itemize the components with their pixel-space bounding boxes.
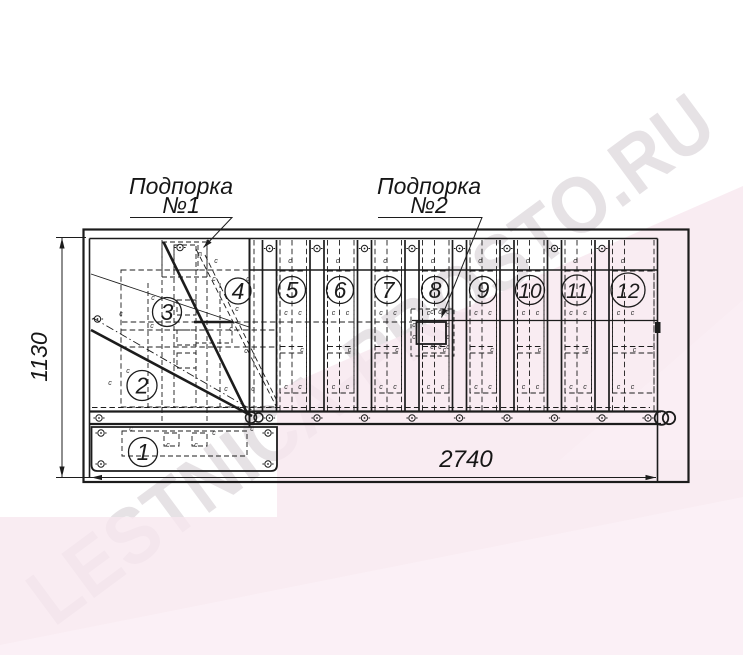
tick-mark: c: [536, 310, 540, 317]
tick-mark: c: [474, 310, 478, 317]
tick-mark: c: [617, 310, 621, 317]
step-number: 7: [382, 277, 396, 303]
tick-mark: c: [536, 384, 540, 391]
tick-mark: c: [474, 384, 478, 391]
tick-mark: c: [478, 258, 482, 265]
tick-mark: c: [214, 258, 218, 265]
tick-mark: c: [108, 380, 112, 387]
tick-mark: c: [244, 348, 248, 355]
tick-mark: c: [573, 258, 577, 265]
tick-mark: c: [490, 347, 494, 354]
step-number: 8: [429, 277, 442, 303]
tick-mark: c: [348, 347, 352, 354]
step-number: 5: [286, 277, 299, 303]
tick-mark: c: [212, 276, 216, 283]
support2-number: №2: [410, 192, 448, 218]
tick-mark: c: [332, 384, 336, 391]
dim-length-value: 2740: [438, 446, 493, 473]
tick-mark: c: [150, 323, 154, 330]
wall-connector-tick: [655, 322, 661, 333]
tick-mark: c: [446, 344, 450, 351]
tick-mark: c: [300, 347, 304, 354]
technical-drawing-canvas: LESTNICA-PROSTO.RU: [0, 0, 743, 655]
staircase-plan-svg: LESTNICA-PROSTO.RU: [0, 0, 743, 655]
step-number: 1: [137, 439, 150, 465]
tick-mark: c: [522, 310, 526, 317]
tick-mark: c: [538, 347, 542, 354]
tick-mark: c: [526, 258, 530, 265]
tick-mark: c: [229, 326, 233, 333]
tick-mark: c: [235, 306, 239, 313]
tick-mark: c: [430, 309, 434, 316]
step-number: 3: [161, 299, 174, 325]
tick-mark: c: [298, 384, 302, 391]
tick-mark: c: [631, 310, 635, 317]
tick-mark: c: [427, 384, 431, 391]
tick-mark: c: [446, 322, 450, 329]
tick-mark: c: [412, 334, 416, 341]
step-number: 9: [477, 277, 490, 303]
step-number: 11: [566, 280, 588, 303]
tick-mark: c: [166, 442, 170, 449]
support1-number: №1: [162, 192, 200, 218]
tick-mark: c: [583, 384, 587, 391]
dim-depth-value: 1130: [26, 332, 52, 382]
tick-mark: c: [346, 384, 350, 391]
tick-mark: c: [129, 426, 133, 433]
step-number: 12: [616, 280, 640, 303]
tick-mark: c: [583, 310, 587, 317]
tick-mark: c: [379, 310, 383, 317]
tick-mark: c: [212, 430, 216, 437]
tick-mark: c: [522, 384, 526, 391]
tick-mark: c: [446, 334, 450, 341]
tick-mark: c: [346, 310, 350, 317]
tick-mark: c: [336, 258, 340, 265]
tick-mark: c: [621, 258, 625, 265]
tick-mark: c: [284, 384, 288, 391]
tick-mark: c: [488, 310, 492, 317]
tick-mark: c: [119, 311, 123, 318]
step-number: 10: [518, 280, 542, 303]
tick-mark: c: [446, 309, 450, 316]
tick-mark: c: [441, 384, 445, 391]
tick-mark: c: [151, 295, 155, 302]
tick-mark: c: [431, 258, 435, 265]
step-number: 6: [334, 277, 347, 303]
tick-mark: c: [569, 384, 573, 391]
tick-mark: c: [438, 344, 442, 351]
tick-mark-alt: п: [198, 251, 202, 258]
tick-mark: c: [194, 442, 198, 449]
tick-mark: c: [383, 258, 387, 265]
tick-mark: c: [284, 310, 288, 317]
tick-mark: c: [412, 322, 416, 329]
tick-mark: c: [443, 347, 447, 354]
tick-mark: c: [393, 384, 397, 391]
tick-mark: c: [393, 310, 397, 317]
tick-mark: c: [288, 258, 292, 265]
tick-mark: c: [379, 384, 383, 391]
tick-mark: c: [298, 310, 302, 317]
tick-mark: c: [631, 384, 635, 391]
tick-mark: c: [633, 347, 637, 354]
tick-mark: c: [585, 347, 589, 354]
tick-mark: c: [251, 386, 255, 393]
tick-mark: c: [488, 384, 492, 391]
tick-mark: c: [250, 426, 254, 433]
step-number: 2: [135, 373, 149, 399]
tick-mark: c: [126, 368, 130, 375]
tick-mark: c: [569, 310, 573, 317]
tick-mark: c: [395, 347, 399, 354]
tick-mark: c: [617, 384, 621, 391]
tick-mark: c: [246, 276, 250, 283]
tick-mark: c: [430, 344, 434, 351]
step-number: 4: [232, 278, 245, 304]
tick-mark: c: [332, 310, 336, 317]
tick-mark: c: [441, 310, 445, 317]
tick-mark: c: [427, 310, 431, 317]
tick-mark: c: [224, 386, 228, 393]
